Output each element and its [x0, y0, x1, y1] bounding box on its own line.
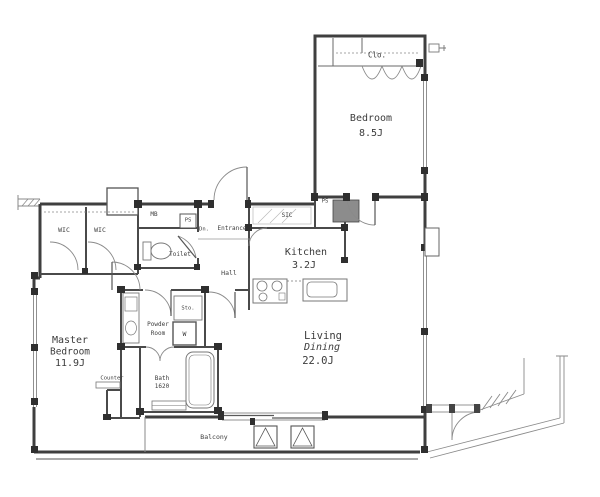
- bath-label: Bath: [155, 376, 169, 382]
- master-label-2: Bedroom: [50, 347, 90, 357]
- ps-kitchen-label: PS: [322, 199, 329, 205]
- storage-label: Sto.: [181, 306, 194, 312]
- powder-room-label-1: Powder: [147, 322, 169, 328]
- powder-room-label-2: Room: [151, 331, 165, 337]
- bedroom-size-label: 8.5J: [359, 129, 383, 139]
- living-size-label: 22.0J: [302, 356, 334, 367]
- kitchen-size-label: 3.2J: [292, 261, 316, 271]
- pipe-space-right-box: [425, 228, 439, 256]
- entrance-label: Entrance: [218, 226, 247, 232]
- counter-label: Counter: [100, 376, 123, 382]
- wic-right-label: WIC: [94, 227, 106, 234]
- hall-label: Hall: [221, 270, 237, 277]
- sic-label: SIC: [282, 213, 293, 219]
- meter-box-label: MB: [150, 212, 157, 218]
- master-label-1: Master: [52, 336, 88, 346]
- toilet-label: Toilet: [169, 252, 191, 258]
- closet-label: Clo.: [368, 51, 386, 59]
- wic-left-label: WIC: [58, 227, 70, 234]
- bedroom-label: Bedroom: [350, 114, 392, 124]
- washer-label: W: [183, 331, 187, 338]
- bath-size-label: 1620: [155, 384, 169, 390]
- dining-label: Dining: [304, 343, 340, 353]
- floor-plan: Clo. Bedroom 8.5J WIC WIC MB PS Dn. Entr…: [0, 0, 600, 497]
- meter-box: [107, 188, 138, 215]
- balcony-label: Balcony: [200, 434, 227, 441]
- down-step-label: Dn.: [199, 227, 209, 233]
- living-label: Living: [304, 331, 342, 342]
- pipe-space-kitchen-box: [333, 200, 359, 222]
- kitchen-label: Kitchen: [285, 248, 327, 258]
- master-size-label: 11.9J: [55, 359, 85, 369]
- ps-entry-label: PS: [185, 218, 192, 224]
